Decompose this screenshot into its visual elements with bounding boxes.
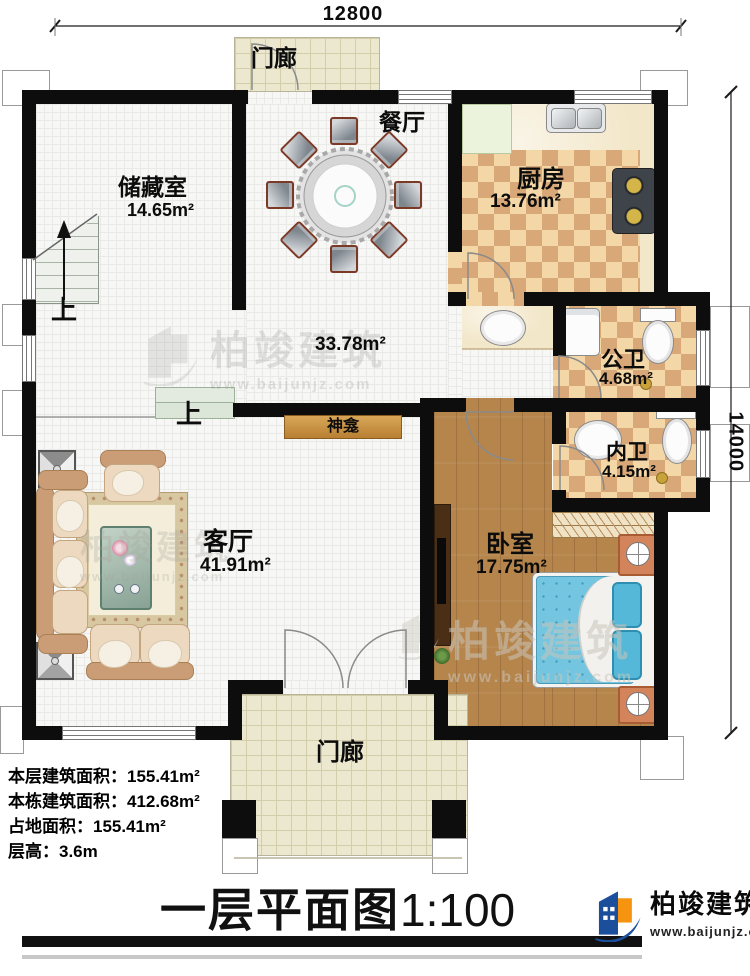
sink-basin (577, 108, 602, 129)
cup-decor (114, 584, 124, 594)
wall-segment (553, 306, 566, 356)
wall-segment (654, 498, 668, 740)
plant (434, 648, 450, 664)
throw-pillow (56, 556, 84, 588)
wall-segment (434, 694, 448, 740)
wall-segment (22, 726, 62, 740)
door-threshold-south (283, 680, 408, 694)
window-sill (0, 706, 24, 754)
wall-segment (22, 300, 36, 335)
wall-segment (228, 680, 283, 694)
wall-segment (420, 412, 434, 680)
floor-plan-sheet: 柏竣建筑 www.baijunjz.com 柏竣建筑 www.baijunjz.… (0, 0, 750, 976)
stats-block: 本层建筑面积：155.41m² 本栋建筑面积：412.68m² 占地面积：155… (8, 764, 200, 864)
room-area-bedroom: 17.75m² (476, 558, 547, 578)
title-rule-black (22, 936, 642, 947)
shrine-cabinet: 神龛 (284, 415, 402, 439)
porch-column (432, 800, 466, 838)
sofa-armrest (38, 634, 88, 654)
hall-area-label: 33.78m² (315, 335, 386, 355)
room-label-storage: 储藏室 (118, 175, 187, 199)
cup-decor (130, 584, 140, 594)
dining-chair (330, 117, 358, 145)
porch-column-base (222, 838, 258, 874)
window (398, 90, 452, 104)
window (696, 330, 710, 386)
kitchen-sink (546, 103, 606, 133)
throw-pillow (148, 640, 182, 668)
stat-total-area: 本栋建筑面积：412.68m² (8, 789, 200, 814)
room-area-public-bath: 4.68m² (599, 370, 653, 388)
sofa-armrest (38, 470, 88, 490)
window-sill (710, 306, 750, 388)
window (574, 90, 652, 104)
kitchen-cabinet (462, 104, 512, 154)
dining-chair (266, 181, 294, 209)
tv (437, 538, 446, 604)
stat-footprint: 占地面积：155.41m² (8, 814, 200, 839)
room-label-public-bath: 公卫 (601, 348, 645, 371)
room-label-porch-bottom: 门廊 (316, 740, 364, 765)
hall-strip-floor (448, 306, 462, 398)
room-label-private-bath: 内卫 (606, 442, 648, 464)
bed-pillow (612, 582, 642, 628)
wall-segment (448, 292, 466, 306)
hall-strip-floor2 (462, 348, 553, 398)
room-label-kitchen: 厨房 (517, 167, 565, 192)
kitchen-door-floor (448, 252, 462, 292)
dining-chair (330, 245, 358, 273)
window-sill (2, 304, 24, 346)
up-label-steps: 上 (176, 401, 202, 428)
room-area-living: 41.91m² (200, 556, 271, 576)
title-main: 一层平面图 (160, 874, 400, 940)
door-threshold-top (248, 90, 312, 104)
stat-floor-area: 本层建筑面积：155.41m² (8, 764, 200, 789)
wall-segment (420, 398, 466, 412)
throw-pillow (56, 500, 84, 532)
porch-column-base (432, 838, 468, 874)
room-area-storage: 14.65m² (127, 201, 194, 220)
room-label-porch-top: 门廊 (251, 46, 297, 70)
wall-segment (228, 694, 242, 740)
up-label-stairs: 上 (51, 297, 77, 324)
porch-column (222, 800, 256, 838)
flower-decor (112, 540, 128, 556)
wall-segment (22, 90, 248, 104)
wall-segment (448, 726, 668, 740)
brand-logo-icon (592, 884, 644, 942)
brand-logo: 柏竣建筑 www.baijunjz.com (592, 884, 750, 942)
window-sill (2, 390, 24, 436)
sofa-cushion (52, 590, 88, 634)
lamp-icon (626, 692, 650, 716)
shrine-label: 神龛 (327, 419, 359, 436)
floor-drain (656, 472, 668, 484)
stove (612, 168, 656, 234)
bed-pillow (612, 630, 642, 680)
room-label-living: 客厅 (203, 529, 253, 555)
dimension-top: 12800 (308, 4, 398, 25)
dining-chair (394, 181, 422, 209)
sheet-title: 一层平面图 1:100 (160, 874, 515, 940)
wall-segment (524, 292, 710, 306)
wall-segment (452, 90, 574, 104)
dimension-right: 14000 (725, 412, 746, 470)
wall-segment (552, 412, 566, 444)
wall-segment (696, 306, 710, 330)
toilet-bowl (642, 320, 674, 364)
brand-site: www.baijunjz.com (650, 924, 750, 939)
window (22, 258, 36, 300)
brand-name: 柏竣建筑 (650, 884, 750, 921)
wall-segment (552, 498, 710, 512)
sink-basin (551, 108, 576, 129)
wall-segment (232, 104, 246, 310)
kitchen-door-gap (466, 292, 524, 306)
coffee-table (100, 526, 152, 610)
living-floor-south (36, 680, 228, 726)
wall-segment (514, 398, 710, 412)
room-area-kitchen: 13.76m² (490, 192, 561, 212)
wall-segment (312, 90, 398, 104)
room-label-bedroom: 卧室 (486, 532, 534, 557)
title-rule-gray (22, 955, 642, 959)
stat-height: 层高：3.6m (8, 839, 200, 864)
flower-decor (124, 554, 136, 566)
wall-segment (552, 490, 566, 498)
toilet-bowl (662, 418, 692, 464)
wall-segment (654, 90, 668, 306)
wall-segment (22, 104, 36, 258)
title-scale: 1:100 (400, 883, 515, 937)
wall-segment (448, 104, 462, 252)
room-label-dining: 餐厅 (379, 110, 425, 134)
wall-segment (196, 726, 228, 740)
vanity-sink (480, 310, 526, 346)
window (696, 430, 710, 478)
room-area-private-bath: 4.15m² (602, 463, 656, 481)
wall-segment (22, 382, 36, 740)
lamp-icon (626, 542, 650, 566)
throw-pillow (98, 640, 132, 668)
throw-pillow (112, 470, 144, 496)
window (62, 726, 196, 740)
wall-segment (408, 680, 448, 694)
window-sill (640, 736, 684, 780)
window (22, 335, 36, 382)
